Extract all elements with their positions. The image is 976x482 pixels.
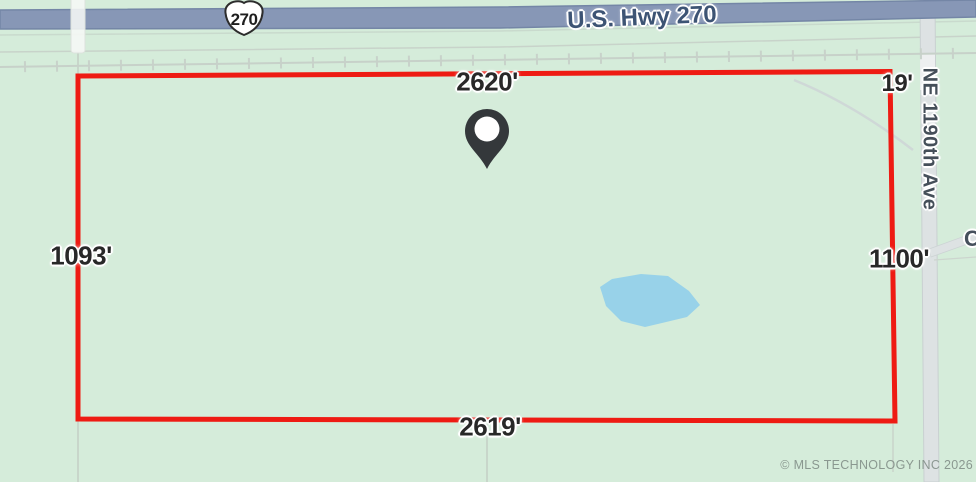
dimension-right: 1100' [869, 244, 929, 275]
location-pin-hole [475, 117, 500, 142]
railroad-track [0, 53, 976, 67]
dimension-left: 1093' [50, 241, 112, 272]
map-attribution: © MLS TECHNOLOGY INC 2026 [780, 458, 973, 472]
frontage-line-lower [0, 36, 976, 52]
dimension-bottom: 2619' [459, 412, 521, 443]
highway-shield-label: 270 [231, 10, 258, 30]
map-canvas[interactable]: 270 U.S. Hwy 270 NE 1190th Ave C 2620' 1… [0, 0, 976, 482]
branch-road-line [934, 257, 976, 260]
minor-road-stub [71, 0, 85, 53]
cross-street-label: NE 1190th Ave [918, 68, 941, 211]
partial-road-label: C [964, 226, 976, 252]
dimension-corner: 19' [882, 70, 913, 98]
dimension-top: 2620' [456, 67, 518, 98]
pond [600, 274, 700, 327]
